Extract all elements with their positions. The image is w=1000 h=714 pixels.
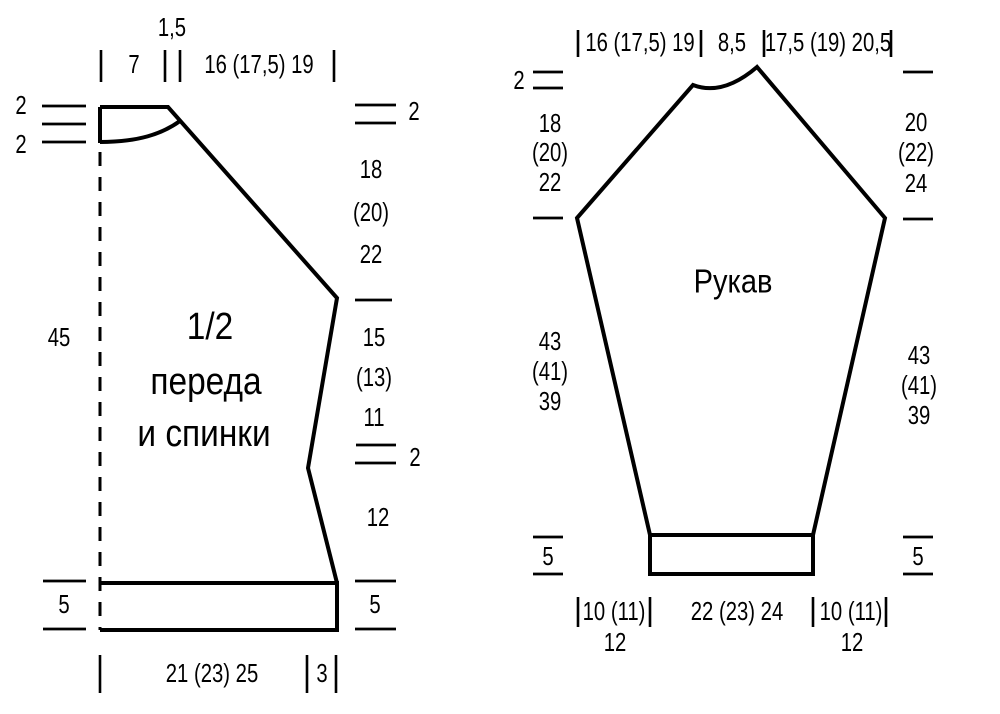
fb-raglan-height-1: 18 [360, 156, 383, 182]
sleeve-right-seam-1: 43 [908, 342, 931, 368]
fb-shoulder-width-label: 7 [128, 51, 139, 77]
fb-waist-shaping-label: 2 [409, 444, 420, 470]
fb-shoulder-drop-label: 2 [408, 98, 419, 124]
neckline-curve [100, 121, 180, 142]
fb-band-height-right-label: 5 [369, 591, 380, 617]
fb-band-height-left-label: 5 [58, 591, 69, 617]
sleeve-cuff-width-label: 22 (23) 24 [691, 598, 783, 624]
fb-title-line1: 1/2 [187, 308, 233, 346]
sleeve-top-width-label: 8,5 [718, 29, 746, 55]
knitting-pattern-diagram: 1,5 7 16 (17,5) 19 2 2 45 1/2 переда и с… [0, 0, 1000, 714]
sleeve-left-taper2-label: 12 [604, 629, 627, 655]
sleeve-right-taper-label: 10 (11) [820, 598, 883, 624]
fb-armhole-waist-2: (13) [356, 364, 392, 390]
sleeve-outline [577, 67, 885, 535]
sleeve-left-seam-3: 39 [539, 388, 562, 414]
sleeve-left-cap-height-1: 18 [539, 110, 562, 136]
fb-neck-width-label: 16 (17,5) 19 [204, 51, 313, 77]
sleeve-left-seam-1: 43 [539, 328, 562, 354]
front-back-right-shoulder-ticks [355, 105, 396, 123]
fb-side-extra-label: 3 [316, 660, 327, 686]
sleeve-right-cap-height-2: (22) [898, 139, 934, 165]
sleeve-right-seam-3: 39 [908, 402, 931, 428]
fb-half-width-label: 21 (23) 25 [166, 660, 258, 686]
fb-hip-height-label: 12 [367, 504, 390, 530]
sleeve-left-cap-width-label: 16 (17,5) 19 [585, 29, 694, 55]
fb-title-line3: и спинки [137, 415, 270, 453]
hem-band [100, 583, 337, 630]
sleeve-piece [533, 30, 933, 627]
fb-shoulder-gap-label: 1,5 [158, 14, 186, 40]
sleeve-underarm-ticks [533, 218, 933, 219]
fb-raglan-height-3: 22 [360, 241, 383, 267]
fb-raglan-height-2: (20) [353, 199, 389, 225]
sleeve-cuff-height-right-label: 5 [912, 543, 923, 569]
front-back-right-waist-ticks [355, 445, 396, 463]
sleeve-left-taper-label: 10 (11) [583, 598, 646, 624]
sleeve-left-seam-2: (41) [532, 358, 568, 384]
fb-title-line2: переда [150, 363, 261, 401]
sleeve-cuff-height-left-label: 5 [542, 543, 553, 569]
fb-neck-drop-back-label: 2 [15, 92, 26, 118]
cuff-band [650, 535, 813, 574]
fb-armhole-waist-3: 11 [363, 404, 384, 430]
sleeve-peak-drop-label: 2 [513, 67, 524, 93]
sleeve-right-cap-height-3: 24 [905, 170, 928, 196]
sleeve-right-cap-width-label: 17,5 (19) 20,5 [765, 29, 891, 55]
fb-side-height-label: 45 [48, 324, 71, 350]
sleeve-cuff-ticks [533, 537, 933, 574]
sleeve-left-cap-height-3: 22 [539, 169, 562, 195]
sleeve-left-peak-ticks [533, 72, 563, 88]
fb-armhole-waist-1: 15 [363, 324, 386, 350]
sleeve-left-cap-height-2: (20) [532, 139, 568, 165]
front-back-left-neck-ticks [42, 106, 86, 142]
sleeve-title: Рукав [694, 265, 773, 298]
sleeve-right-cap-height-1: 20 [905, 109, 928, 135]
sleeve-right-seam-2: (41) [901, 372, 937, 398]
sleeve-right-taper2-label: 12 [841, 629, 864, 655]
fb-neck-drop-front-label: 2 [15, 131, 26, 157]
